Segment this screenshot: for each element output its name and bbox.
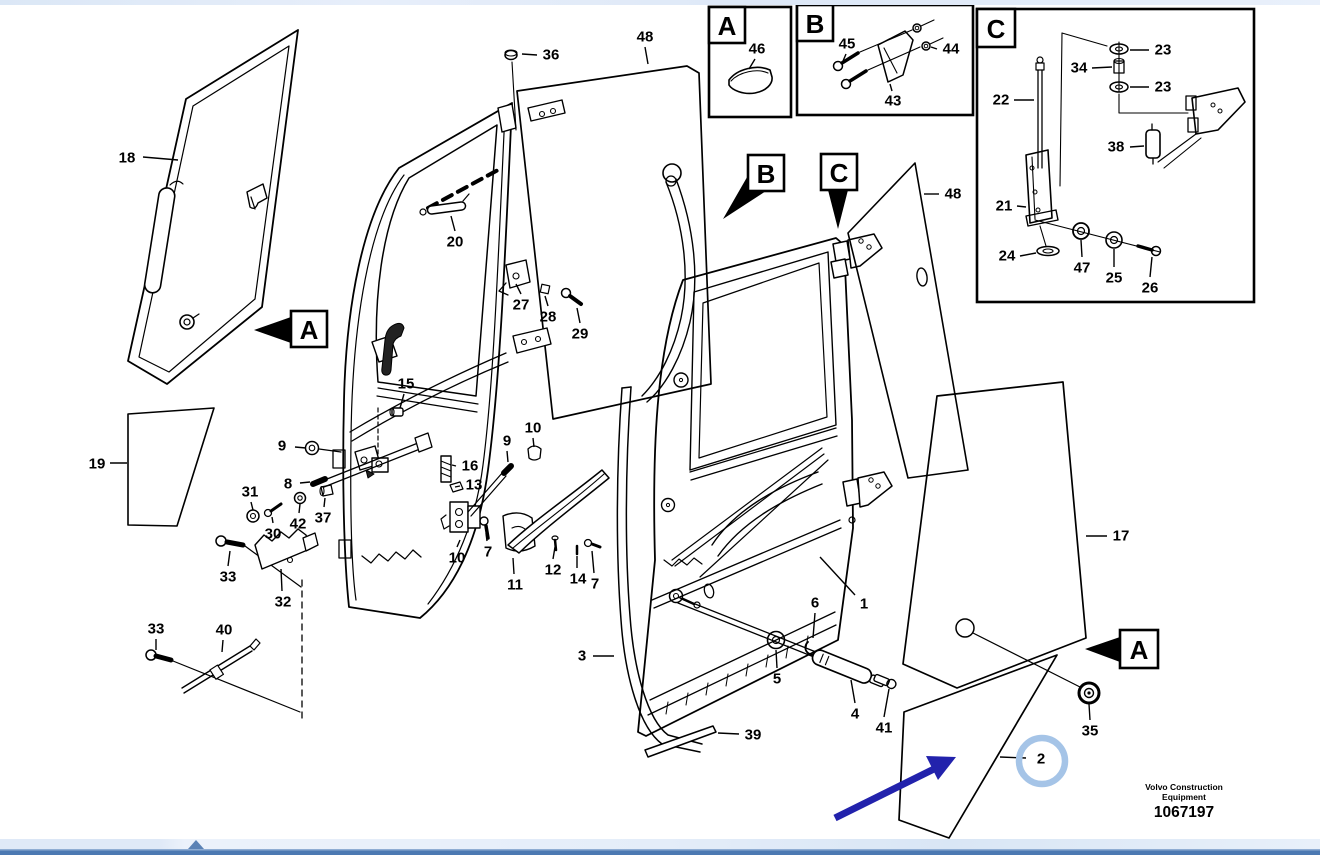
part-label-47: 47 [1074, 260, 1091, 277]
leader-line-31 [251, 502, 253, 510]
part-label-23-a: 23 [1155, 42, 1172, 59]
footer-brand: Volvo Construction Equipment 1067197 [1145, 782, 1223, 821]
main-door-art [638, 234, 892, 736]
left-hardware-art [247, 433, 432, 522]
part-label-10-top: 10 [525, 420, 542, 437]
part-label-10-bottom: 10 [449, 550, 466, 567]
part-label-17: 17 [1113, 528, 1130, 545]
leader-line-33-top [228, 551, 230, 566]
part-label-48-top: 48 [637, 29, 654, 46]
part-label-22: 22 [993, 92, 1010, 109]
ref-letter-C-main: C [830, 158, 849, 188]
inset-b-art [834, 20, 944, 89]
part-label-43: 43 [885, 93, 902, 110]
part-label-8: 8 [284, 476, 292, 493]
leader-line-13 [455, 486, 460, 487]
leader-line-11 [513, 558, 514, 574]
part-label-25: 25 [1106, 270, 1123, 287]
part-label-36: 36 [543, 47, 560, 64]
part-label-37: 37 [315, 510, 332, 527]
leader-line-26 [1150, 257, 1152, 277]
leader-line-7-b [592, 551, 594, 573]
leader-line-10-bottom [457, 540, 460, 547]
part-label-24: 24 [999, 248, 1016, 265]
leader-line-10-top [533, 438, 534, 447]
part-label-1: 1 [860, 596, 868, 613]
part-label-39: 39 [745, 727, 762, 744]
part-label-21: 21 [996, 198, 1013, 215]
part-label-14: 14 [570, 571, 587, 588]
part-label-35: 35 [1082, 723, 1099, 740]
part-label-23-b: 23 [1155, 79, 1172, 96]
part-label-18: 18 [119, 150, 136, 167]
ref-marker-A-right: A [1085, 630, 1158, 668]
part-label-9-right: 9 [503, 433, 511, 450]
door-handle-mechanism-art [355, 323, 404, 478]
part-label-38: 38 [1108, 139, 1125, 156]
ref-letter-A-side: A [300, 315, 319, 345]
part-label-2: 2 [1037, 751, 1045, 768]
part-label-13: 13 [466, 477, 483, 494]
leader-line-4 [851, 680, 855, 703]
part-label-12: 12 [545, 562, 562, 579]
ref-letter-B-main: B [757, 159, 776, 189]
leader-line-12 [553, 547, 555, 559]
part-label-11: 11 [507, 577, 523, 594]
top-strip [0, 0, 1320, 5]
part-label-9-left: 9 [278, 438, 286, 455]
part-label-40: 40 [216, 622, 233, 639]
leader-line-29 [577, 308, 580, 323]
leader-line-38 [1130, 146, 1144, 147]
part-label-29: 29 [572, 326, 589, 343]
leader-line-15 [400, 394, 404, 408]
footer-brand-line2: Equipment [1162, 792, 1206, 802]
leader-line-41 [884, 689, 889, 717]
glass-48-top-art [505, 50, 711, 419]
leader-line-6 [813, 613, 815, 638]
scrollbar-track[interactable] [0, 839, 1320, 849]
part-label-7-b: 7 [591, 576, 599, 593]
part-label-7-a: 7 [484, 544, 492, 561]
part-label-42: 42 [290, 516, 307, 533]
part-label-27: 27 [513, 297, 530, 314]
scroll-position-marker-icon[interactable] [188, 840, 204, 849]
part-label-33-top: 33 [220, 569, 237, 586]
leader-line-24 [1020, 253, 1036, 256]
pane-17-art [903, 382, 1099, 703]
part-label-46: 46 [749, 41, 766, 58]
leader-line-21 [1017, 206, 1026, 207]
highlight-arrow-shaft [835, 768, 936, 818]
leader-line-32 [281, 569, 282, 591]
leader-line-16 [452, 465, 456, 466]
inset-c-art [1026, 33, 1245, 256]
pane-2-art [899, 655, 1057, 838]
scrollbar-thumb[interactable] [0, 849, 1320, 855]
leader-line-48-top [645, 47, 648, 64]
leader-line-8 [300, 482, 310, 483]
leader-line-37 [324, 498, 325, 507]
part-label-28: 28 [540, 309, 557, 326]
pane-19-art [128, 408, 214, 526]
leader-line-7-a [486, 533, 487, 541]
part-label-34: 34 [1071, 60, 1088, 77]
part-label-16: 16 [462, 458, 479, 475]
leader-line-9-right [507, 451, 508, 462]
leader-line-30 [272, 517, 273, 523]
lower-left-hardware-art [146, 529, 318, 712]
leader-line-42 [299, 504, 300, 513]
part-label-4: 4 [851, 706, 860, 723]
part-label-15: 15 [398, 376, 415, 393]
figure-number: 1067197 [1154, 804, 1214, 821]
inset-letter-C: C [987, 14, 1006, 44]
horizontal-scrollbar[interactable] [0, 839, 1320, 855]
inset-letter-B: B [806, 9, 825, 39]
leader-line-1 [820, 557, 855, 595]
leader-line-40 [222, 640, 223, 652]
leader-line-43 [890, 84, 892, 91]
part-label-30: 30 [265, 526, 282, 543]
parts-diagram-page: 1819364820272829159831304237161391010711… [0, 0, 1320, 855]
part-label-31: 31 [242, 484, 259, 501]
leader-line-20 [451, 216, 455, 231]
leader-line-28 [545, 296, 548, 306]
footer-brand-line1: Volvo Construction [1145, 782, 1223, 792]
ref-marker-B-main: B [723, 155, 784, 219]
leader-line-35 [1089, 704, 1090, 720]
ref-letter-A-right: A [1130, 635, 1149, 665]
leader-line-5 [776, 650, 777, 668]
part-label-33-bottom: 33 [148, 621, 165, 638]
inset-box-A: A [709, 7, 791, 117]
ref-marker-A-side: A [254, 311, 327, 347]
part-label-19: 19 [89, 456, 106, 473]
part-label-5: 5 [773, 671, 781, 688]
pane-48-right-art [848, 163, 968, 478]
part-label-26: 26 [1142, 280, 1159, 297]
part-label-44: 44 [943, 41, 960, 58]
part-label-32: 32 [275, 594, 292, 611]
part-label-3: 3 [578, 648, 586, 665]
labels-layer: 1819364820272829159831304237161391010711… [89, 5, 1254, 768]
annotation-layer [835, 738, 1065, 818]
leader-line-44 [931, 47, 937, 49]
part-label-48-right: 48 [945, 186, 962, 203]
ref-marker-C-main: C [821, 154, 857, 229]
leader-line-39 [718, 733, 739, 734]
leader-line-36 [522, 54, 537, 55]
channel-3-art [617, 387, 716, 757]
leader-line-9-left [295, 447, 306, 448]
part-label-6: 6 [811, 595, 819, 612]
leader-line-34 [1092, 67, 1112, 68]
leader-line-47 [1081, 240, 1082, 257]
inset-a-art [729, 67, 772, 93]
part-label-45: 45 [839, 36, 856, 53]
part-label-20: 20 [447, 234, 464, 251]
inset-letter-A: A [718, 11, 737, 41]
part-label-41: 41 [876, 720, 893, 737]
